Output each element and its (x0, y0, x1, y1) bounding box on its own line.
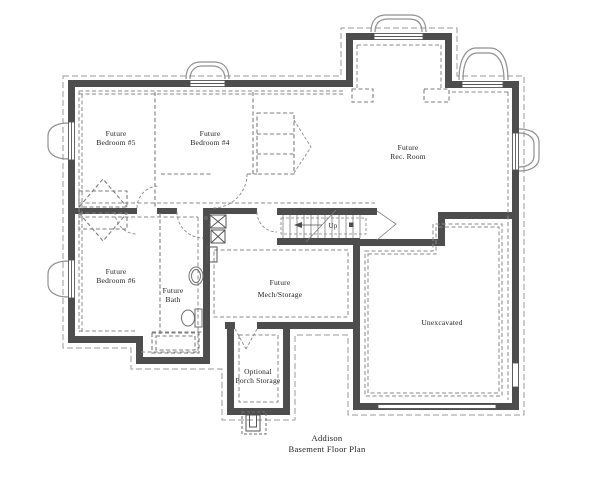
labels-layer: Future Bedroom #5 Future Bedroom #4 Futu… (96, 129, 462, 385)
window-well (48, 123, 68, 159)
wall (227, 329, 234, 415)
wall (346, 33, 374, 40)
plan-title-line2: Basement Floor Plan (289, 444, 366, 454)
wall (283, 322, 290, 415)
stair-end-arrow (377, 211, 396, 240)
room-label-bath: Future (163, 286, 184, 295)
chimney-footing (246, 415, 260, 431)
inner-dash-path (368, 227, 499, 393)
wall (225, 80, 348, 87)
future-closet (257, 113, 294, 174)
wall (512, 81, 519, 133)
inner-dashed-layer (79, 45, 508, 402)
room-label-bedroom5: Future (106, 129, 127, 138)
window-well (371, 15, 426, 32)
room-label-bedroom4: Future (200, 129, 221, 138)
wall (346, 33, 353, 87)
closet-door (294, 147, 311, 173)
plan-title: Addison Basement Floor Plan (289, 433, 366, 454)
plan-title-line1: Addison (312, 433, 343, 443)
stairs-up-label: Up (329, 222, 338, 230)
basement-floor-plan: Future Bedroom #5 Future Bedroom #4 Futu… (0, 0, 600, 480)
wall (136, 357, 210, 364)
corner-pad (352, 89, 373, 102)
room-label-rec-room: Future (398, 143, 419, 152)
wall (277, 208, 377, 215)
up-arrow-tail (349, 223, 354, 228)
room-label-porch-storage: Porch Storage (236, 376, 281, 385)
room-label-bath: Bath (166, 295, 181, 304)
window-well (48, 261, 68, 297)
shower-outline (156, 336, 195, 350)
wall (68, 80, 75, 122)
double-door (246, 329, 257, 349)
wall (353, 240, 360, 410)
toilet-bowl (182, 310, 195, 326)
up-arrowhead (294, 222, 302, 228)
bath-sink (192, 270, 201, 283)
door-layer (115, 120, 311, 349)
room-label-bedroom4: Bedroom #4 (190, 138, 229, 147)
wall (68, 80, 190, 87)
closet-door (294, 120, 311, 147)
door-swing (177, 212, 203, 238)
wall-ledge-notch (513, 363, 519, 387)
wardrobe-box (79, 191, 127, 207)
wall-ledge-notch (378, 405, 496, 409)
room-label-bedroom6: Future (106, 267, 127, 276)
room-label-bedroom6: Bedroom #6 (96, 276, 135, 285)
window-well (190, 66, 225, 79)
window-well (519, 133, 534, 167)
room-label-unexcavated: Unexcavated (421, 318, 462, 327)
inner-dash-path (365, 224, 502, 396)
corner-pad (424, 89, 449, 102)
room-label-mech-storage: Future (270, 278, 291, 287)
wall (445, 33, 452, 88)
wardrobe-box (79, 213, 127, 229)
wall (438, 212, 519, 219)
wall (203, 212, 210, 364)
double-door (235, 329, 246, 349)
wall (68, 160, 75, 260)
future-wall-layer (79, 89, 449, 353)
wall (277, 238, 360, 245)
chimney-footing-inner (250, 415, 257, 427)
wall (445, 81, 462, 88)
door-swing (257, 212, 277, 232)
door-swing (115, 212, 137, 234)
wall (353, 239, 445, 246)
wall (203, 208, 257, 214)
wall (257, 322, 360, 329)
wall (68, 336, 143, 343)
wall (225, 322, 235, 329)
room-label-mech-storage: Mech/Storage (258, 290, 303, 299)
window-well (375, 19, 422, 32)
room-label-bedroom5: Bedroom #5 (96, 138, 135, 147)
room-label-rec-room: Rec. Room (390, 152, 426, 161)
room-label-porch-storage: Optional (244, 367, 272, 376)
fixtures-layer (182, 215, 267, 434)
door-swing (137, 186, 159, 208)
